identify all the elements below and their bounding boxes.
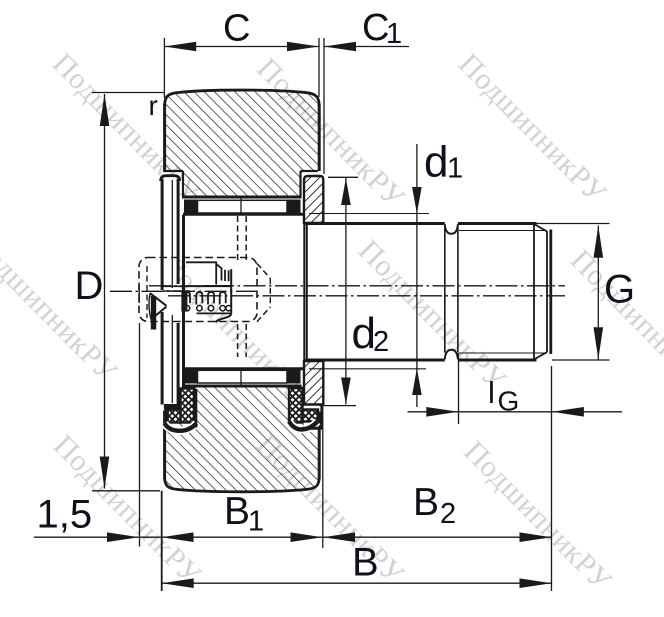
svg-text:B: B [224, 490, 250, 533]
svg-text:2: 2 [373, 326, 389, 358]
svg-text:C: C [223, 8, 250, 50]
svg-text:2: 2 [440, 498, 456, 530]
svg-text:1: 1 [386, 18, 402, 50]
svg-text:1: 1 [447, 153, 463, 185]
svg-text:G: G [498, 386, 520, 417]
svg-text:G: G [604, 268, 635, 312]
svg-text:1,5: 1,5 [37, 493, 93, 537]
svg-text:1: 1 [248, 506, 264, 538]
svg-text:D: D [75, 264, 104, 308]
svg-text:d: d [424, 138, 448, 187]
svg-text:r: r [149, 90, 158, 121]
svg-text:B: B [352, 541, 379, 585]
svg-text:l: l [488, 375, 495, 410]
svg-text:B: B [413, 481, 439, 524]
